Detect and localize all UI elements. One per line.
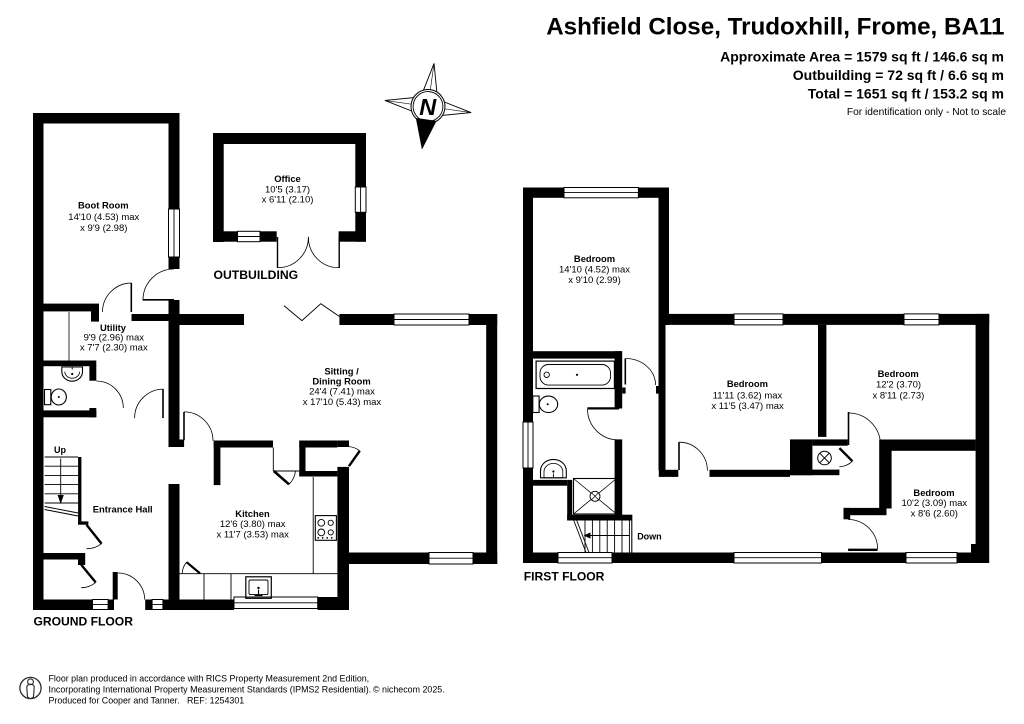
svg-text:Utility: Utility [100,322,127,333]
svg-text:Down: Down [637,532,662,542]
svg-text:Floor plan produced in accorda: Floor plan produced in accordance with R… [49,674,370,684]
svg-text:x 9'9 (2.98): x 9'9 (2.98) [80,223,127,234]
svg-text:Kitchen: Kitchen [235,508,270,519]
svg-text:Produced for Cooper and Tanner: Produced for Cooper and Tanner. REF: 125… [49,696,245,706]
svg-text:x 9'10 (2.99): x 9'10 (2.99) [568,275,621,286]
svg-text:FIRST FLOOR: FIRST FLOOR [524,569,605,583]
svg-text:Bedroom: Bedroom [878,368,919,379]
svg-text:x 11'7 (3.53) max: x 11'7 (3.53) max [216,529,289,540]
svg-text:x 8'6 (2.60): x 8'6 (2.60) [911,508,958,519]
svg-text:10'2 (3.09) max: 10'2 (3.09) max [901,498,967,509]
svg-text:Bedroom: Bedroom [727,378,768,389]
svg-text:x 7'7 (2.30) max: x 7'7 (2.30) max [80,342,148,353]
svg-text:Boot Room: Boot Room [78,200,129,211]
svg-text:12'2 (3.70): 12'2 (3.70) [876,380,921,391]
svg-text:11'11 (3.62) max: 11'11 (3.62) max [713,391,783,402]
svg-text:OUTBUILDING: OUTBUILDING [214,268,299,282]
svg-text:Bedroom: Bedroom [913,487,954,498]
svg-text:Bedroom: Bedroom [574,253,615,264]
svg-text:Approximate Area = 1579 sq ft: Approximate Area = 1579 sq ft / 146.6 sq… [720,48,1004,64]
svg-text:x 17'10 (5.43) max: x 17'10 (5.43) max [303,397,382,408]
svg-text:Office: Office [274,173,301,184]
svg-text:x 6'11 (2.10): x 6'11 (2.10) [262,194,314,205]
svg-text:© nichecom 2025.: © nichecom 2025. [373,685,445,695]
svg-text:14'10 (4.53) max: 14'10 (4.53) max [68,212,139,223]
svg-text:Total = 1651 sq ft / 153.2 sq: Total = 1651 sq ft / 153.2 sq m [808,85,1004,101]
svg-text:14'10 (4.52) max: 14'10 (4.52) max [559,264,630,275]
svg-text:Up: Up [54,445,66,455]
svg-text:For identification only - Not: For identification only - Not to scale [847,107,1006,118]
svg-text:x 8'11 (2.73): x 8'11 (2.73) [872,390,924,401]
svg-text:Ashfield Close, Trudoxhill, Fr: Ashfield Close, Trudoxhill, Frome, BA11 [546,13,1004,40]
svg-text:GROUND FLOOR: GROUND FLOOR [34,615,134,629]
svg-text:Outbuilding = 72 sq ft / 6.6 s: Outbuilding = 72 sq ft / 6.6 sq m [793,67,1004,83]
svg-text:N: N [419,94,437,120]
svg-text:Entrance Hall: Entrance Hall [93,504,153,515]
svg-text:Incorporating International Pr: Incorporating International Property Mea… [49,685,372,695]
svg-text:Dining Room: Dining Room [312,375,370,386]
svg-text:x 11'5 (3.47) max: x 11'5 (3.47) max [711,401,784,412]
